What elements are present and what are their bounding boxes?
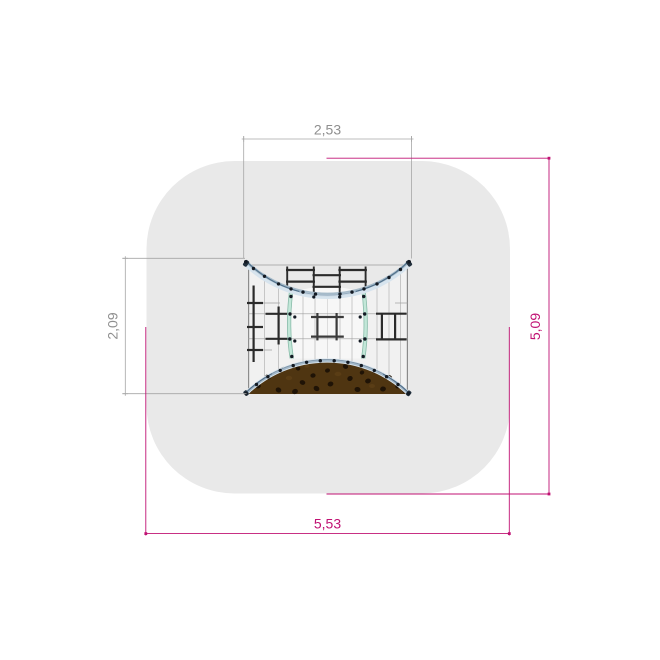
svg-text:5,53: 5,53 — [314, 516, 341, 532]
svg-text:2,09: 2,09 — [105, 312, 121, 339]
svg-text:5,09: 5,09 — [527, 313, 543, 340]
svg-text:2,53: 2,53 — [314, 122, 341, 138]
